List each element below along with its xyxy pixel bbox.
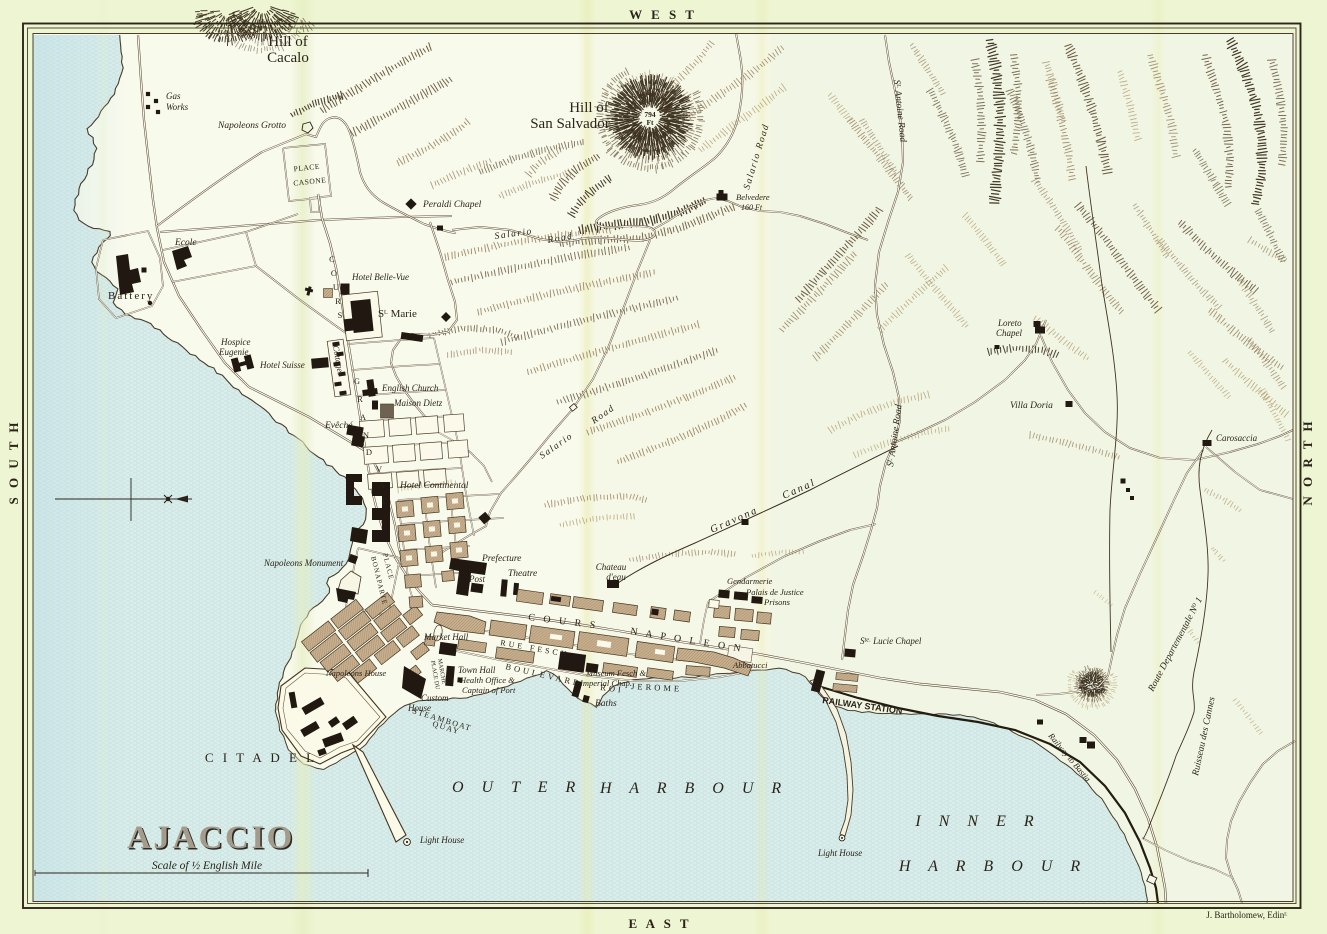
svg-text:Peraldi Chapel: Peraldi Chapel (422, 200, 482, 210)
svg-text:Imperial Chap.: Imperial Chap. (579, 678, 632, 688)
svg-text:Works: Works (166, 102, 189, 112)
svg-text:Hotel Continental: Hotel Continental (399, 481, 469, 491)
svg-text:N: N (363, 430, 369, 440)
svg-text:J. Bartholomew, Edinr.: J. Bartholomew, Edinr. (1206, 910, 1288, 920)
svg-text:R: R (335, 296, 341, 306)
svg-text:O U T E R: O U T E R (452, 779, 582, 796)
svg-text:I N N E R: I N N E R (914, 813, 1040, 830)
svg-text:Hospice: Hospice (220, 337, 251, 347)
svg-text:St. Marie: St. Marie (378, 308, 417, 320)
svg-text:O: O (331, 268, 337, 278)
svg-text:Chateau: Chateau (596, 562, 627, 572)
svg-text:Hotel Suisse: Hotel Suisse (259, 360, 305, 370)
svg-text:Battery: Battery (108, 290, 154, 302)
svg-text:L: L (382, 496, 387, 506)
svg-text:U: U (333, 282, 339, 292)
svg-text:Market Hall: Market Hall (423, 632, 469, 642)
svg-text:S: S (338, 310, 343, 320)
svg-text:D: D (366, 447, 372, 457)
svg-text:Vecchio: Vecchio (1080, 686, 1105, 695)
svg-text:San Salvador: San Salvador (530, 116, 610, 132)
svg-text:H A R B O U R: H A R B O U R (599, 780, 788, 797)
svg-text:G: G (354, 376, 360, 386)
svg-text:Baths: Baths (595, 699, 617, 709)
svg-text:Light House: Light House (419, 835, 464, 845)
svg-text:Ecole: Ecole (174, 238, 197, 248)
svg-text:Town Hall: Town Hall (458, 665, 496, 675)
svg-text:Museum Fesch &: Museum Fesch & (585, 668, 646, 678)
svg-text:Post: Post (468, 574, 486, 584)
svg-text:Custom: Custom (421, 693, 449, 703)
svg-text:Chapel: Chapel (996, 328, 1022, 338)
svg-text:d'eau: d'eau (606, 572, 626, 582)
svg-text:Carosaccia: Carosaccia (1216, 433, 1258, 443)
svg-text:E A S T: E A S T (628, 916, 691, 931)
svg-text:R: R (357, 394, 363, 404)
svg-text:C: C (329, 254, 335, 264)
svg-text:160 Ft: 160 Ft (741, 203, 763, 212)
svg-text:English Church: English Church (381, 383, 439, 393)
svg-text:Palais de Justice: Palais de Justice (745, 587, 804, 597)
svg-text:Hill of: Hill of (569, 100, 609, 116)
svg-text:Gendarmerie: Gendarmerie (727, 576, 773, 586)
svg-text:A: A (379, 480, 386, 490)
svg-text:Eugenie: Eugenie (218, 347, 249, 357)
svg-text:V: V (376, 464, 383, 474)
svg-text:A: A (360, 412, 367, 422)
svg-text:Abbatucci: Abbatucci (732, 660, 768, 670)
svg-text:Prisons: Prisons (763, 597, 791, 607)
svg-text:Napoleons Grotto: Napoleons Grotto (217, 121, 286, 131)
svg-text:Napoleons Monument: Napoleons Monument (263, 558, 344, 568)
svg-text:Villa Doria: Villa Doria (1010, 401, 1053, 411)
svg-text:AJACCIO: AJACCIO (127, 820, 295, 856)
svg-text:Cacalo: Cacalo (267, 50, 309, 66)
svg-text:H A R B O U R: H A R B O U R (898, 858, 1087, 875)
svg-text:C I T A D E L: C I T A D E L (205, 750, 317, 765)
svg-text:Loreto: Loreto (997, 318, 1022, 328)
svg-text:Castel: Castel (1078, 676, 1099, 685)
svg-text:Maison Dietz: Maison Dietz (393, 398, 443, 408)
svg-text:Scale of ½ English Mile: Scale of ½ English Mile (152, 860, 262, 872)
svg-text:Hill of: Hill of (268, 34, 308, 50)
svg-text:Hotel Belle-Vue: Hotel Belle-Vue (351, 272, 409, 282)
svg-text:W E S T: W E S T (629, 7, 697, 22)
svg-text:Prefecture: Prefecture (481, 553, 521, 564)
svg-text:Evêché: Evêché (324, 421, 353, 431)
svg-text:Health Office &: Health Office & (459, 675, 515, 685)
svg-text:Light House: Light House (817, 848, 862, 858)
svg-text:S O U T H: S O U T H (6, 419, 21, 504)
svg-text:Napoleons House: Napoleons House (325, 668, 386, 678)
svg-text:Theatre: Theatre (508, 569, 537, 579)
svg-text:Belvedere: Belvedere (736, 192, 770, 202)
svg-text:Captain of Port: Captain of Port (462, 685, 516, 695)
svg-text:Gas: Gas (166, 91, 181, 101)
svg-text:N O R T H: N O R T H (1300, 418, 1315, 505)
svg-text:Ft: Ft (646, 118, 654, 127)
